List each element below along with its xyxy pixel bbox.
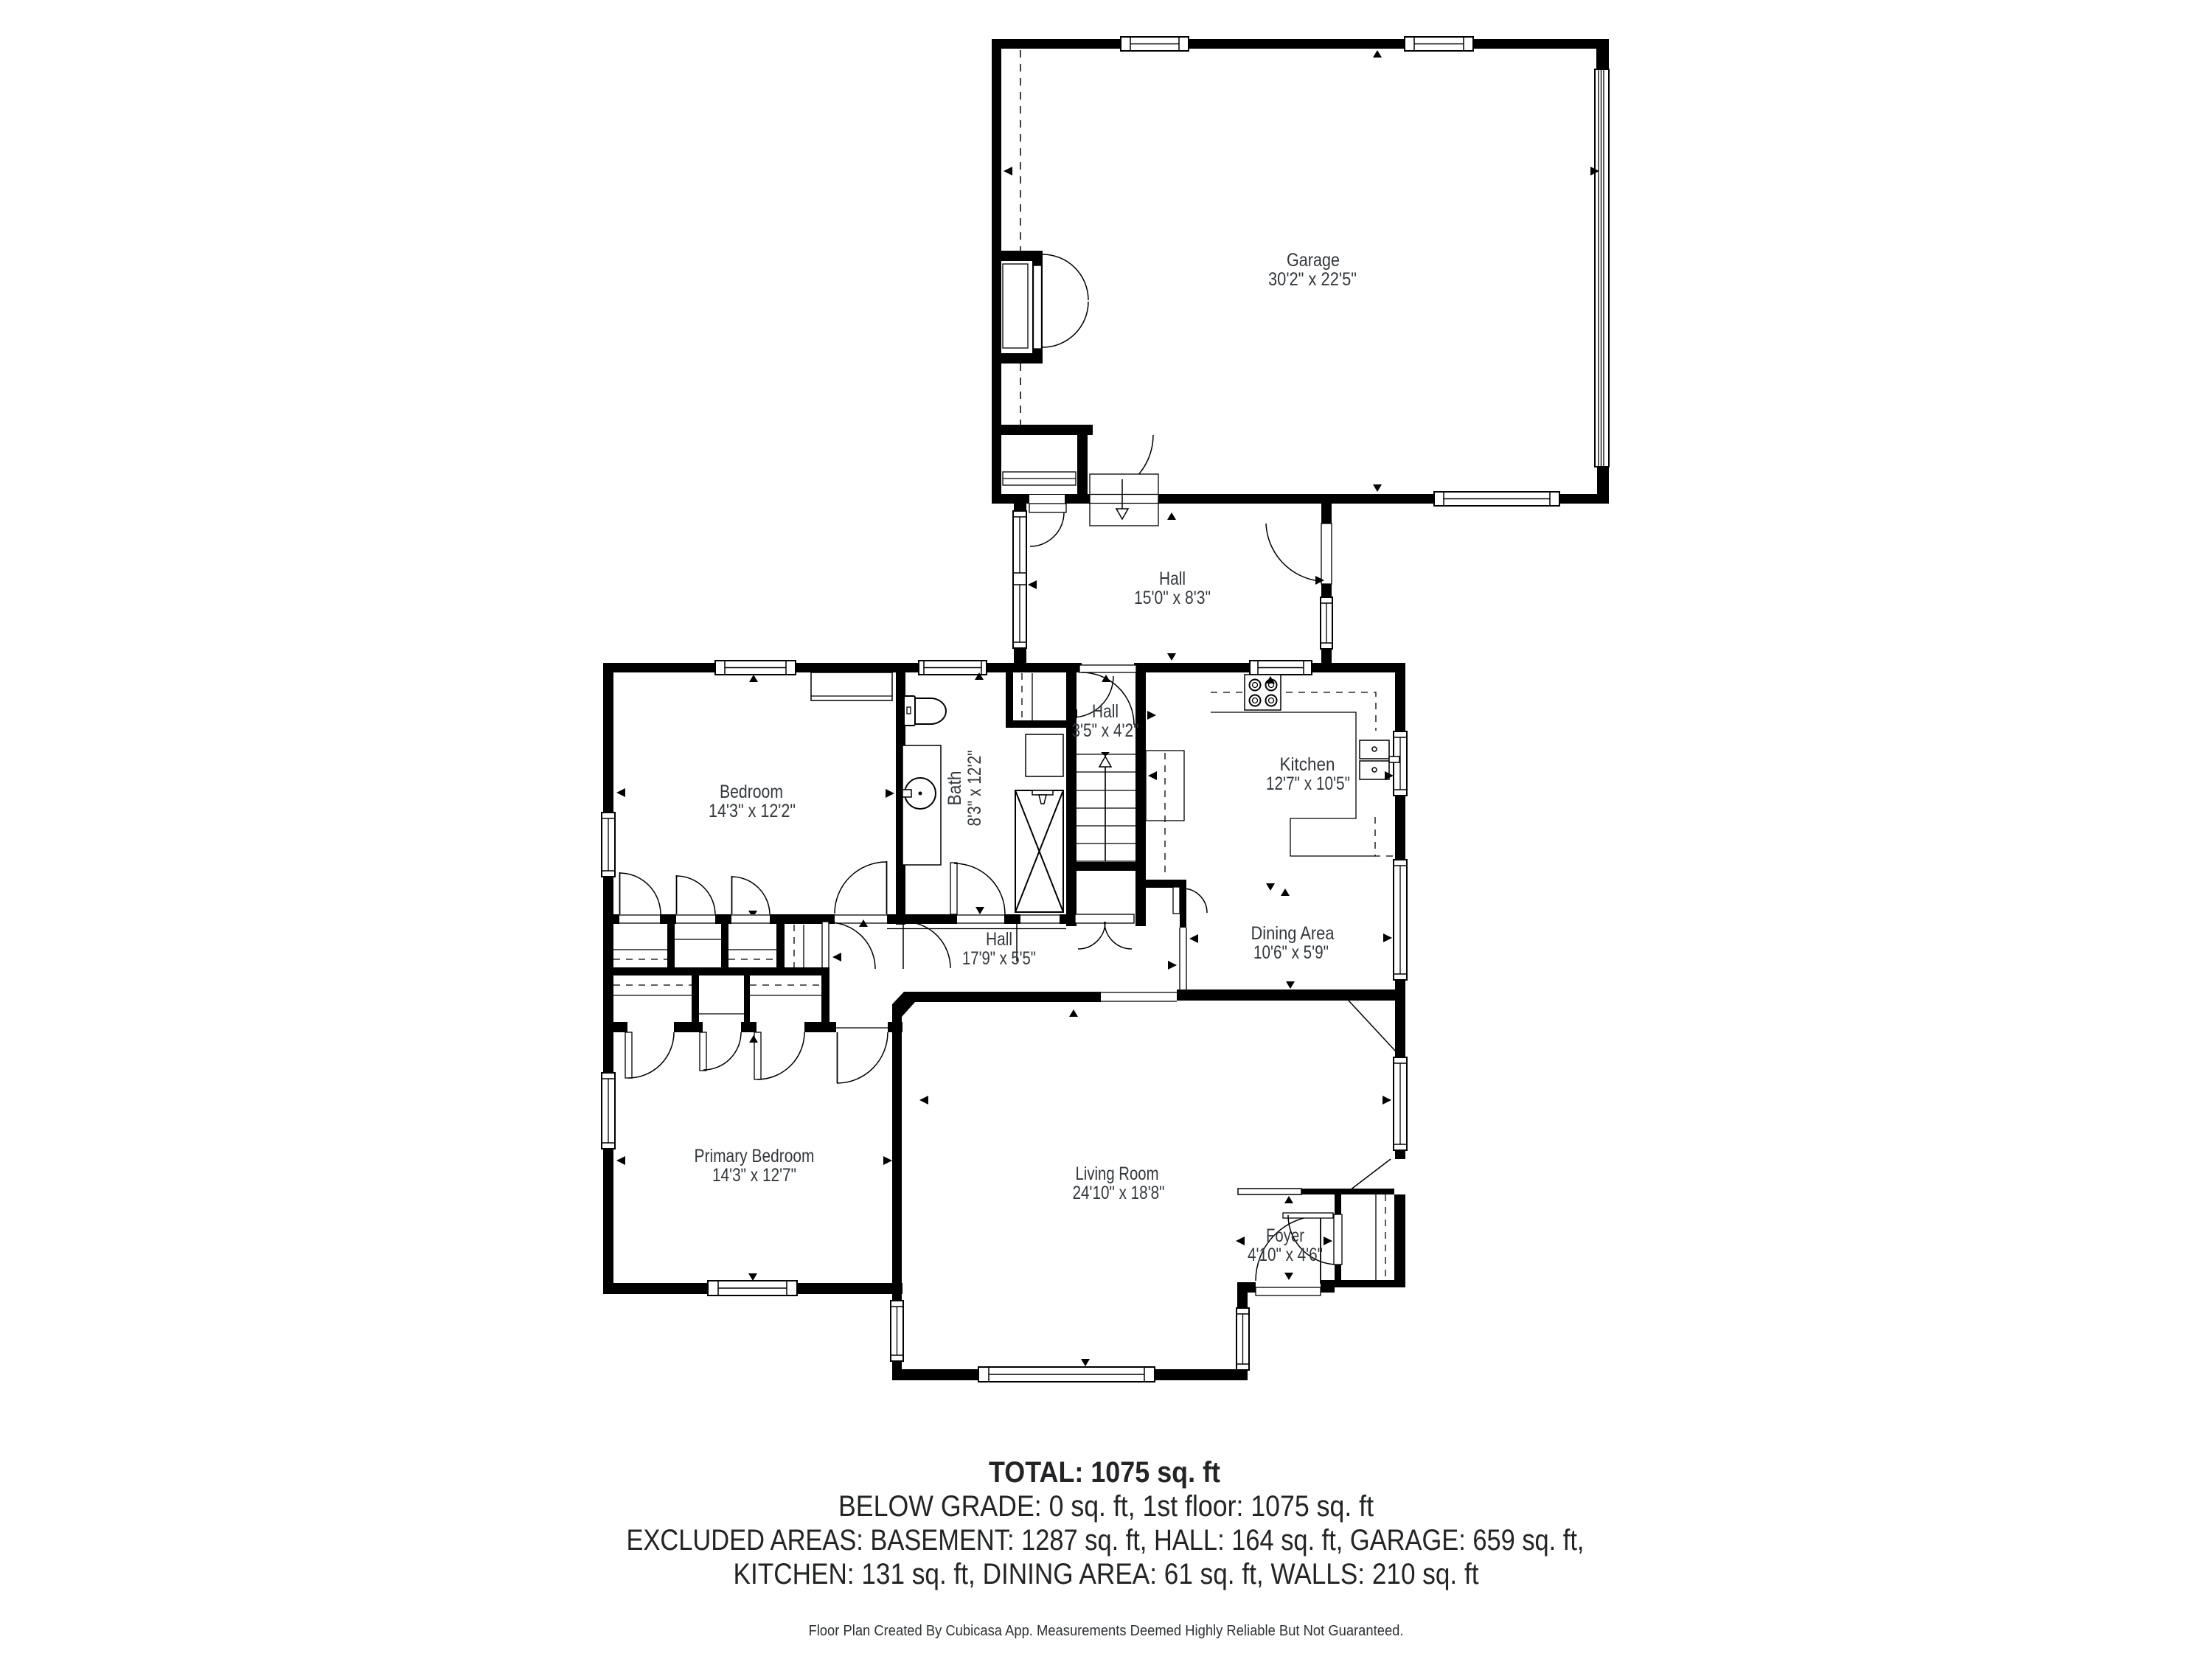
svg-text:10'6" x 5'9": 10'6" x 5'9" <box>1253 942 1329 963</box>
svg-text:Primary Bedroom: Primary Bedroom <box>695 1146 815 1166</box>
svg-text:Hall: Hall <box>1092 701 1119 722</box>
svg-text:14'3" x 12'7": 14'3" x 12'7" <box>712 1165 796 1186</box>
svg-text:30'2" x 22'5": 30'2" x 22'5" <box>1268 269 1357 290</box>
svg-text:Garage: Garage <box>1287 250 1340 271</box>
svg-text:Kitchen: Kitchen <box>1280 754 1335 775</box>
svg-text:Bath: Bath <box>945 771 965 806</box>
svg-text:Floor Plan Created By Cubicasa: Floor Plan Created By Cubicasa App. Meas… <box>809 1623 1404 1639</box>
svg-text:14'3" x 12'2": 14'3" x 12'2" <box>709 801 796 821</box>
svg-text:EXCLUDED AREAS: BASEMENT: 1287: EXCLUDED AREAS: BASEMENT: 1287 sq. ft, H… <box>627 1524 1585 1557</box>
svg-text:Hall: Hall <box>986 929 1012 950</box>
svg-text:3'5" x 4'2": 3'5" x 4'2" <box>1072 720 1139 741</box>
svg-text:Hall: Hall <box>1159 568 1186 589</box>
svg-text:TOTAL: 1075 sq. ft: TOTAL: 1075 sq. ft <box>989 1456 1220 1489</box>
svg-text:24'10" x 18'8": 24'10" x 18'8" <box>1073 1183 1165 1203</box>
svg-text:12'7" x 10'5": 12'7" x 10'5" <box>1266 773 1350 794</box>
svg-text:Bedroom: Bedroom <box>720 782 783 802</box>
svg-text:BELOW GRADE: 0 sq. ft, 1st flo: BELOW GRADE: 0 sq. ft, 1st floor: 1075 s… <box>838 1490 1374 1523</box>
svg-text:Foyer: Foyer <box>1266 1225 1304 1246</box>
svg-text:Dining Area: Dining Area <box>1251 923 1335 944</box>
svg-text:Living Room: Living Room <box>1076 1164 1159 1184</box>
svg-text:8'3" x 12'2": 8'3" x 12'2" <box>964 751 985 827</box>
svg-text:4'10" x 4'6": 4'10" x 4'6" <box>1248 1245 1323 1265</box>
svg-text:15'0" x 8'3": 15'0" x 8'3" <box>1134 588 1211 608</box>
svg-text:17'9" x 5'5": 17'9" x 5'5" <box>962 948 1036 969</box>
svg-text:KITCHEN: 131 sq. ft, DINING AR: KITCHEN: 131 sq. ft, DINING AREA: 61 sq.… <box>734 1558 1479 1590</box>
